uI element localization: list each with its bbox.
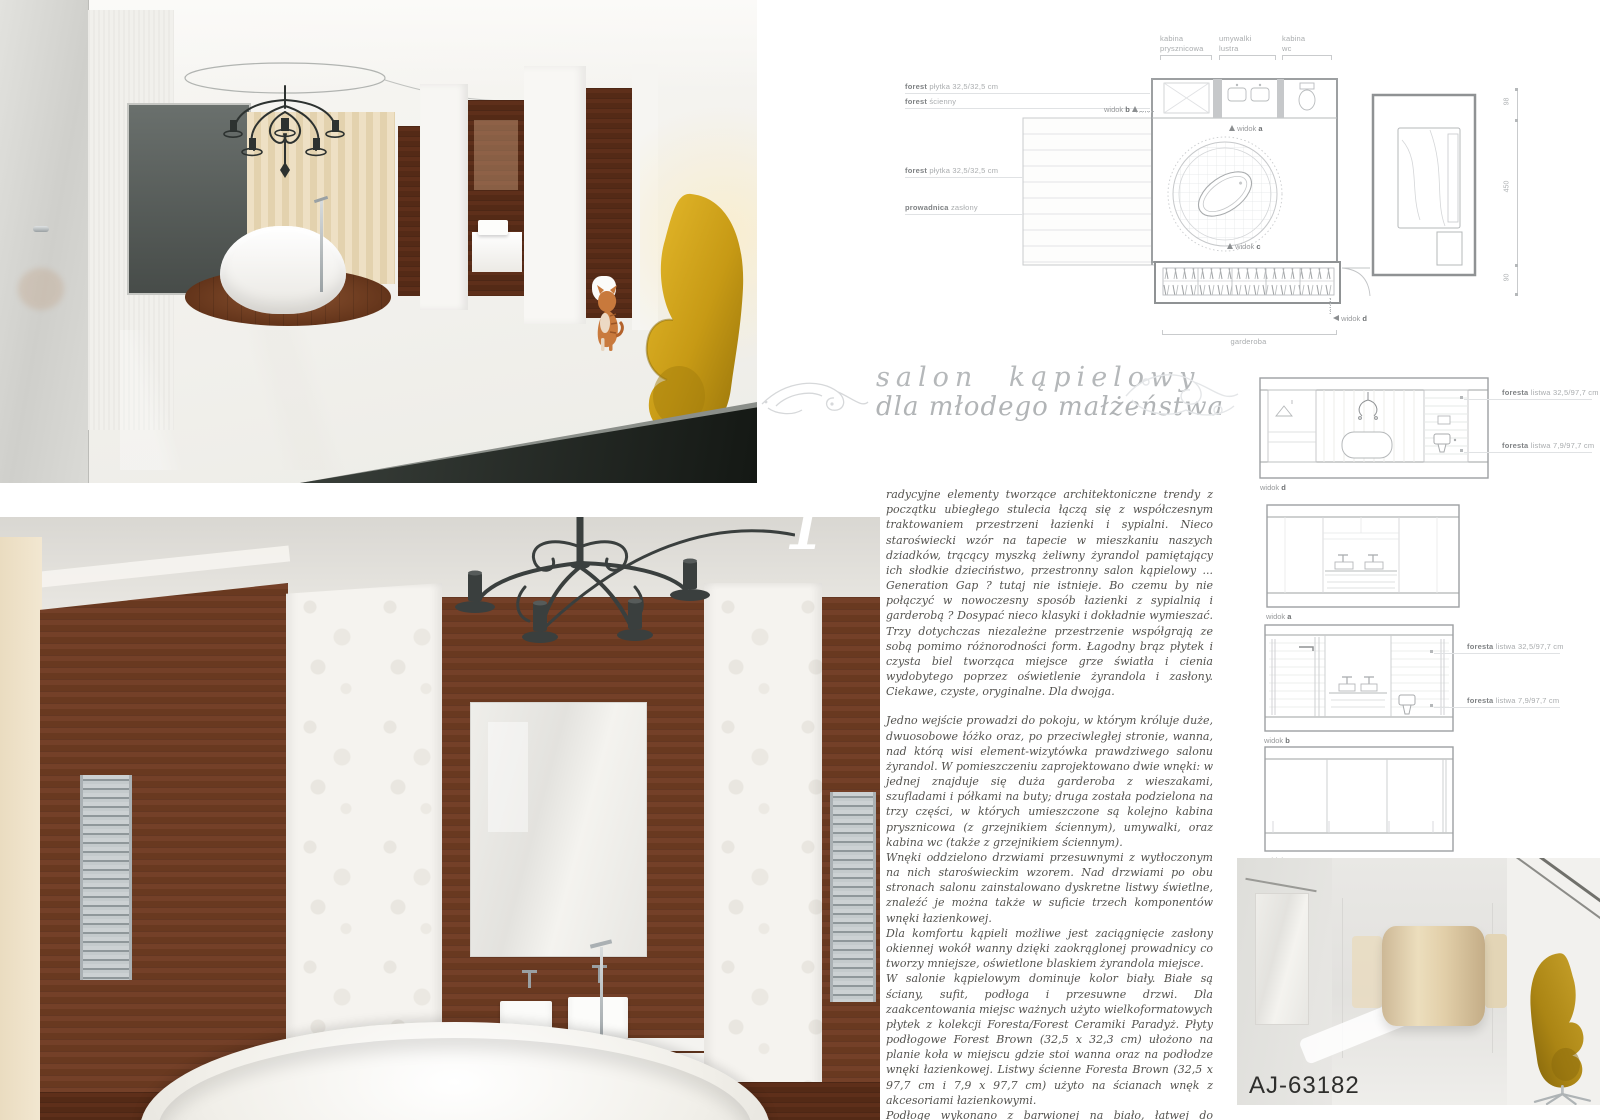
mirror-reflection <box>488 722 528 832</box>
label-bracket <box>1160 55 1212 60</box>
floor-reflection <box>120 330 620 470</box>
plan-label-forest-tile2: forest płytka 32,5/32,5 cm <box>905 166 998 176</box>
brick-wall <box>398 126 422 296</box>
plan-label-wc: kabinawc <box>1282 34 1305 54</box>
presentation-board: T salon kąpielowy dla młodego małżeństwa <box>0 0 1600 1120</box>
render-bathroom-detail <box>0 517 880 1120</box>
elevation-widok-a-drawing <box>1265 503 1461 609</box>
render-bathroom-overview <box>0 0 757 483</box>
leader-dot <box>1430 650 1433 653</box>
plan-label-shower: kabinaprysznicowa <box>1160 34 1203 54</box>
paragraph: Jedno wejście prowadzi do pokoju, w któr… <box>886 713 1213 850</box>
plan-label-forest-wall: forest ścienny <box>905 97 956 107</box>
wood-wall-left <box>40 583 288 1120</box>
leader-dot <box>1460 449 1463 452</box>
leader-dot <box>1460 396 1463 399</box>
paragraph: W salonie kąpielowym dominuje kolor biał… <box>886 971 1213 1108</box>
leader-line <box>1464 399 1592 400</box>
towel-radiator-right <box>830 792 876 1002</box>
dimension-tick <box>1515 88 1518 91</box>
door-handle <box>33 226 49 232</box>
dimension-tick <box>1515 293 1518 296</box>
strip-label: foresta listwa 32,5/97,7 cm <box>1467 642 1564 652</box>
article-column: radycyjne elementy tworzące architektoni… <box>886 487 1213 1120</box>
paragraph: Podłogę wykonano z barwionej na biało, ł… <box>886 1108 1213 1120</box>
bath-tap <box>320 200 323 292</box>
view-marker-icon <box>1227 243 1233 249</box>
elevation-widok-c-drawing <box>1263 745 1455 853</box>
vanity-cabinet <box>472 232 522 272</box>
towel-radiator-left <box>80 775 132 980</box>
basin-tap-handle <box>522 970 537 973</box>
cream-curtain-strip <box>0 537 42 1120</box>
bathtub-rim <box>158 1038 752 1120</box>
leader-line <box>1464 452 1592 453</box>
dimension-value: 98 <box>1503 98 1510 106</box>
elevation-widok-b-drawing <box>1263 623 1455 733</box>
dimension-value: 450 <box>1503 181 1510 193</box>
view-marker-c: widok c <box>1227 242 1261 251</box>
project-code: AJ-63182 <box>1249 1072 1360 1100</box>
leader-line <box>905 214 1023 215</box>
wardrobe-bracket <box>1162 330 1337 335</box>
paragraph: Wnęki oddzielono drzwiami przesuwnymi z … <box>886 850 1213 926</box>
elevation-label-d: widok d <box>1260 483 1286 492</box>
label-bracket <box>1219 55 1276 60</box>
ceiling-cove <box>30 545 290 588</box>
view-marker-icon <box>1132 106 1138 112</box>
mirror-reflection <box>18 268 64 310</box>
view-marker-icon <box>1229 125 1235 131</box>
leader-line <box>905 177 1023 178</box>
egg-chair-small-icon <box>1462 950 1600 1105</box>
chandelier-foreground-icon <box>325 517 795 707</box>
view-marker-d: widok d <box>1333 314 1367 323</box>
strip-label: foresta listwa 32,5/97,7 cm <box>1502 388 1599 398</box>
wall-mirror <box>1255 893 1309 1025</box>
countertop-basin <box>478 220 508 235</box>
strip-label: foresta listwa 7,9/97,7 cm <box>1502 441 1594 451</box>
mirror-door <box>0 0 89 483</box>
elevation-widok-d-drawing <box>1258 376 1490 480</box>
leader-dot <box>1430 704 1433 707</box>
wardrobe-label: garderoba <box>1162 337 1335 347</box>
white-partition <box>420 84 468 310</box>
elevation-label-a: widok a <box>1266 612 1291 621</box>
dimension-tick <box>1515 119 1518 122</box>
alcove-mirror <box>474 120 518 190</box>
view-marker-line <box>1140 111 1154 112</box>
view-marker-b: widok b <box>1104 105 1138 114</box>
plan-label-basins: umywalkilustra <box>1219 34 1251 54</box>
dimension-tick <box>1515 264 1518 267</box>
leader-line <box>1434 653 1560 654</box>
paragraph: radycyjne elementy tworzące architektoni… <box>886 487 1213 699</box>
title-ornament-right-icon <box>1122 366 1242 428</box>
view-marker-a: widok a <box>1229 124 1263 133</box>
leader-line <box>1434 707 1560 708</box>
dimension-value: 90 <box>1503 274 1510 282</box>
freestanding-bathtub <box>220 226 346 314</box>
paragraph: Dla komfortu kąpieli możliwe jest zaciąg… <box>886 926 1213 972</box>
plan-label-forest-tile: forest płytka 32,5/32,5 cm <box>905 82 998 92</box>
view-marker-icon <box>1333 315 1339 321</box>
title-ornament-left-icon <box>758 372 870 422</box>
basin-tap <box>528 972 531 988</box>
curtain-side-panel <box>1352 936 1382 1008</box>
strip-label: foresta listwa 7,9/97,7 cm <box>1467 696 1559 706</box>
plan-label-curtain-guide: prowadnica zasłony <box>905 203 978 213</box>
floor-plan-drawing <box>1000 30 1530 360</box>
elevation-label-b: widok b <box>1264 736 1290 745</box>
leader-line <box>905 93 1150 94</box>
render-perspective-view: AJ-63182 <box>1237 858 1600 1105</box>
view-marker-line <box>1330 298 1331 314</box>
white-partition <box>524 66 586 324</box>
dropcap-letter: T <box>778 474 838 564</box>
label-bracket <box>1282 55 1332 60</box>
